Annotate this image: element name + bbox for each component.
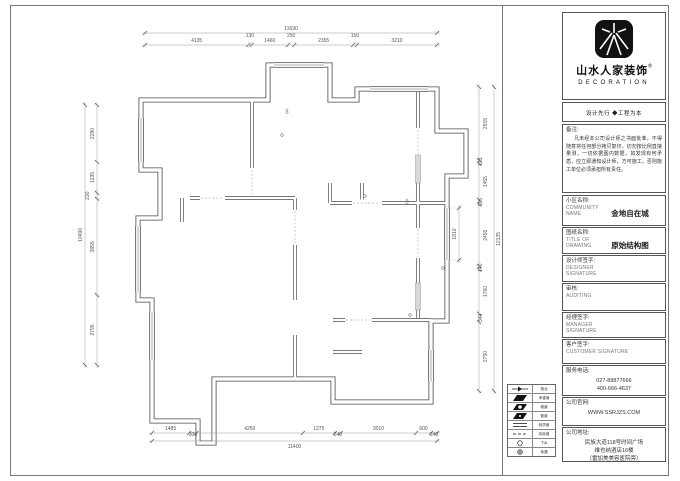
svg-text:11690: 11690 bbox=[284, 26, 298, 32]
plan-details bbox=[136, 63, 450, 383]
remarks-text: 凡未经本公司设计师之书面批准，不得随意将任何部分拷贝复印，切勿按比例直接量测，一… bbox=[566, 136, 662, 175]
field-label: 图纸名称: bbox=[566, 230, 662, 237]
flue-icon bbox=[508, 403, 533, 411]
field-customer-signature: 客户签字: CUSTOMER SIGNATURE bbox=[562, 339, 666, 364]
svg-text:1455: 1455 bbox=[483, 176, 489, 187]
svg-text:185: 185 bbox=[478, 198, 484, 207]
remarks-label: 备注: bbox=[566, 127, 662, 134]
svg-text:1235: 1235 bbox=[90, 172, 96, 183]
light-wall-icon bbox=[508, 421, 533, 429]
svg-text:1810: 1810 bbox=[452, 228, 458, 239]
svg-text:2280: 2280 bbox=[90, 128, 96, 139]
legend-row: 管道 bbox=[508, 412, 555, 421]
brand-name: 山水人家装饰® bbox=[566, 61, 662, 79]
svg-text:300: 300 bbox=[189, 432, 198, 438]
svg-text:135: 135 bbox=[478, 157, 484, 166]
field-designer-signature: 设计师签字: DESIGNER SIGNATURE bbox=[562, 255, 666, 282]
load-bearing-wall-icon bbox=[508, 394, 533, 402]
website-value: WWW.SSRJZS.COM bbox=[566, 409, 662, 417]
service-phone-value: 027-88877666 400-666-4637 bbox=[566, 377, 662, 394]
svg-text:4250: 4250 bbox=[244, 426, 255, 432]
field-label: 经理签字: bbox=[566, 315, 662, 322]
field-label: 客户签字: bbox=[566, 342, 662, 349]
svg-text:1760: 1760 bbox=[483, 286, 489, 297]
logo-box: 山水人家装饰® DECORATION bbox=[562, 12, 666, 100]
company-logo-icon bbox=[594, 19, 634, 59]
field-website: 公司官网: WWW.SSRJZS.COM bbox=[562, 397, 666, 426]
community-name-value: 金地自在城 bbox=[597, 208, 663, 219]
drawing-sheet: 4135130146025023551503210116901485300425… bbox=[0, 0, 680, 481]
field-community-name: 小区名称: COMMUNITY NAME 金地自在城 bbox=[562, 195, 666, 226]
legend-row: 地漏 bbox=[508, 448, 555, 456]
svg-text:240: 240 bbox=[334, 432, 343, 438]
drawing-title-value: 原始结构图 bbox=[597, 240, 663, 251]
svg-text:150: 150 bbox=[351, 33, 360, 39]
svg-text:230: 230 bbox=[85, 191, 91, 200]
field-label: 小区名称: bbox=[566, 198, 662, 205]
field-label: 设计师签字: bbox=[566, 258, 662, 265]
svg-text:250: 250 bbox=[287, 33, 296, 39]
svg-text:2795: 2795 bbox=[90, 324, 96, 335]
field-label: 公司官网: bbox=[566, 400, 662, 407]
svg-text:1485: 1485 bbox=[165, 426, 176, 432]
registered-mark: ® bbox=[648, 64, 652, 70]
field-manager-signature: 经理签字: MANAGER SIGNATURE bbox=[562, 312, 666, 338]
svg-text:600: 600 bbox=[419, 426, 428, 432]
field-label: 公司地址: bbox=[566, 430, 662, 437]
legend-row: 指北 bbox=[508, 385, 555, 394]
svg-text:11400: 11400 bbox=[288, 444, 302, 450]
svg-text:3855: 3855 bbox=[90, 241, 96, 252]
svg-text:10490: 10490 bbox=[78, 228, 84, 242]
field-label-en: AUDITING bbox=[566, 293, 662, 299]
svg-text:1460: 1460 bbox=[264, 38, 275, 44]
svg-text:2455: 2455 bbox=[483, 229, 489, 240]
legend-row: 承重墙 bbox=[508, 394, 555, 403]
north-arrow-icon bbox=[508, 385, 533, 393]
svg-text:2750: 2750 bbox=[483, 351, 489, 362]
svg-text:2355: 2355 bbox=[318, 38, 329, 44]
svg-text:130: 130 bbox=[246, 33, 255, 39]
field-label: 服务电话: bbox=[566, 368, 662, 375]
legend-row: 下水 bbox=[508, 439, 555, 448]
field-label-en: MANAGER SIGNATURE bbox=[566, 322, 662, 334]
pipe-shaft-icon bbox=[508, 412, 533, 420]
field-service-phone: 服务电话: 027-88877666 400-666-4637 bbox=[562, 365, 666, 396]
field-label-en: DESIGNER SIGNATURE bbox=[566, 265, 662, 277]
svg-text:3210: 3210 bbox=[391, 38, 402, 44]
company-tagline: 设计先行 ◆工程为本 bbox=[566, 109, 662, 117]
legend-row: 轻质墙 bbox=[508, 421, 555, 430]
svg-text:2915: 2915 bbox=[483, 118, 489, 129]
legend-row: 拆除墙 bbox=[508, 430, 555, 439]
brand-sub: DECORATION bbox=[566, 80, 662, 86]
svg-text:3010: 3010 bbox=[373, 426, 384, 432]
svg-text:240: 240 bbox=[430, 432, 439, 438]
svg-text:1275: 1275 bbox=[313, 426, 324, 432]
remarks-box: 备注: 凡未经本公司设计师之书面批准，不得随意将任何部分拷贝复印，切勿按比例直接… bbox=[562, 124, 666, 193]
legend-row: 烟道 bbox=[508, 403, 555, 412]
demolish-wall-icon bbox=[508, 430, 533, 438]
svg-text:140: 140 bbox=[478, 263, 484, 272]
address-value: 民族大道118号时间广场 维也纳酒店16楼 （雷加美美容医院旁） bbox=[566, 439, 662, 464]
svg-text:12135: 12135 bbox=[496, 232, 502, 246]
svg-text:340: 340 bbox=[478, 313, 484, 322]
tagline-box: 设计先行 ◆工程为本 bbox=[562, 102, 666, 122]
field-label: 审核: bbox=[566, 286, 662, 293]
legend-table: 指北 承重墙 烟道 管道 轻质墙 拆除墙 下水 地漏 bbox=[507, 384, 556, 457]
field-auditing: 审核: AUDITING bbox=[562, 283, 666, 311]
field-label-en: CUSTOMER SIGNATURE bbox=[566, 349, 662, 355]
drain-icon bbox=[508, 439, 533, 447]
field-drawing-title: 图纸名称: TITLE OF DRAWING 原始结构图 bbox=[562, 227, 666, 254]
field-address: 公司地址: 民族大道118号时间广场 维也纳酒店16楼 （雷加美美容医院旁） bbox=[562, 427, 666, 462]
floor-drain-icon bbox=[508, 448, 533, 456]
svg-text:4135: 4135 bbox=[191, 38, 202, 44]
